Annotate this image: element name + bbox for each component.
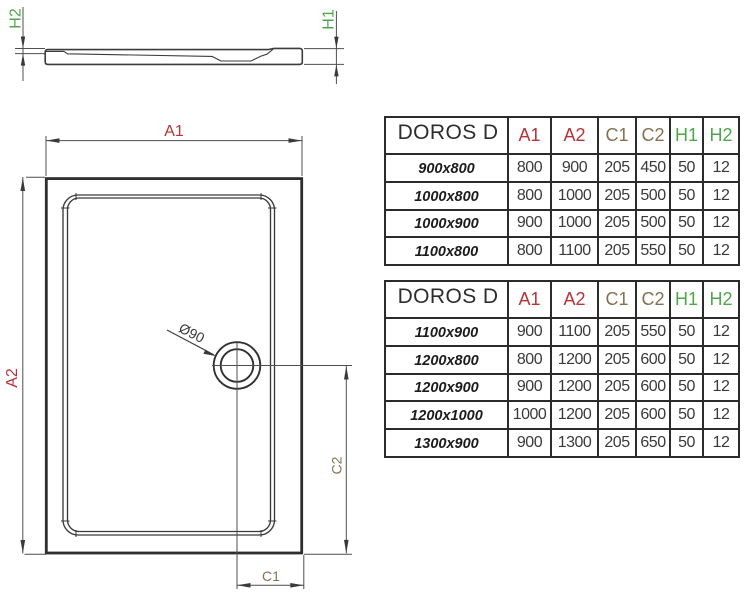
svg-text:A2: A2 xyxy=(4,368,21,388)
svg-text:A1: A1 xyxy=(164,123,184,140)
svg-text:C2: C2 xyxy=(329,456,345,474)
svg-text:H1: H1 xyxy=(321,9,338,30)
svg-text:C1: C1 xyxy=(262,568,280,584)
svg-text:H2: H2 xyxy=(8,8,25,29)
svg-text:Ø90: Ø90 xyxy=(176,320,207,346)
